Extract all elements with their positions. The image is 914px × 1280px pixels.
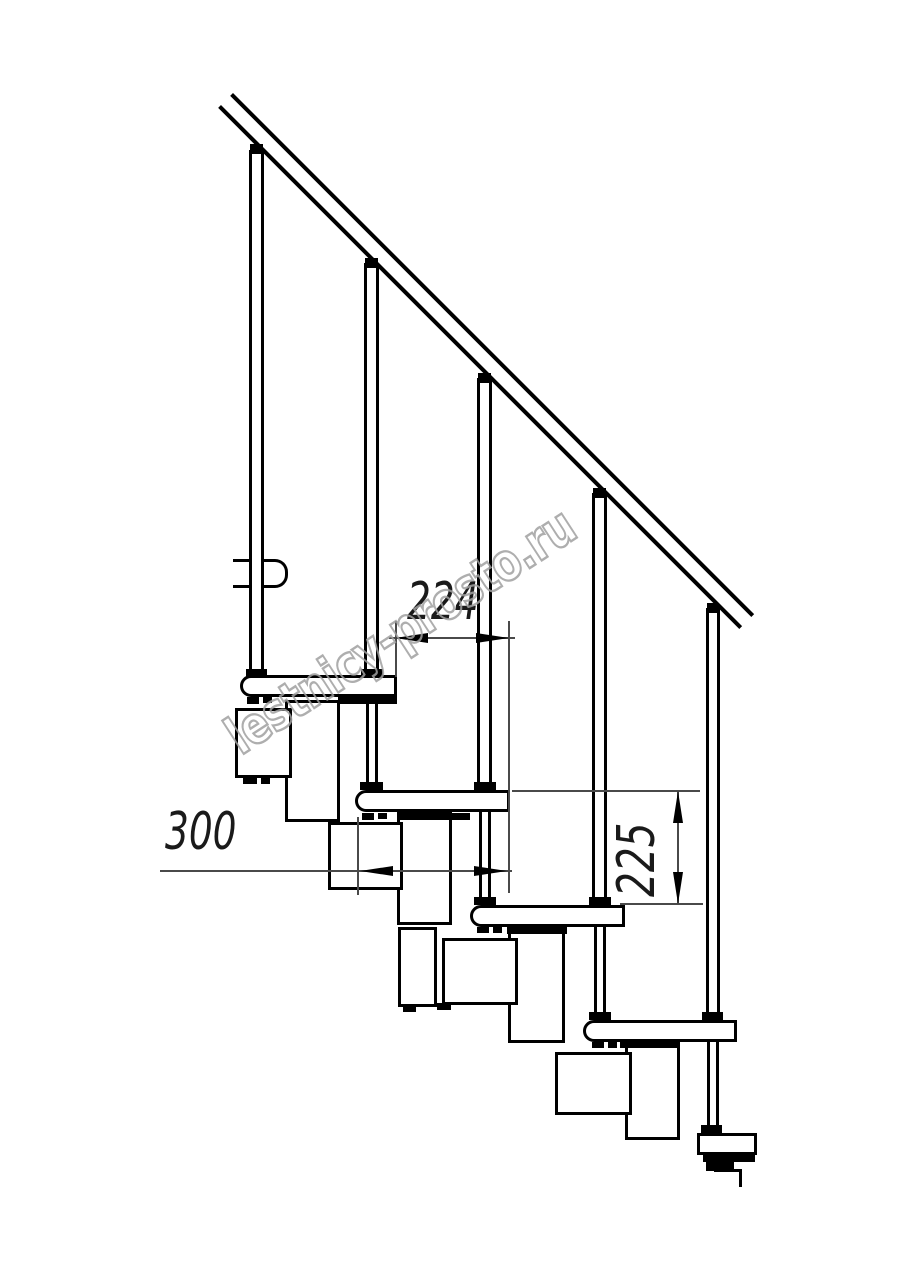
- tie-rod: [707, 1042, 719, 1133]
- tread-foot: [362, 813, 374, 820]
- baluster-4: [592, 493, 607, 905]
- tread-foot: [477, 927, 489, 933]
- baluster-1: [249, 150, 264, 677]
- under-tread-plate: [398, 813, 470, 820]
- module-foot: [243, 778, 257, 784]
- connector-module: [328, 822, 403, 890]
- under-tread-plate: [620, 1042, 680, 1048]
- tread-foot: [592, 1042, 604, 1048]
- bottom-bracket-line: [739, 1169, 742, 1187]
- tread-foot: [378, 813, 387, 819]
- staircase-drawing: 224 300 225 lestnicy-prosto.ru: [0, 0, 914, 1280]
- bottom-bracket-line: [714, 1169, 742, 1172]
- arrowhead-right-icon: [474, 866, 507, 876]
- baluster-cap: [365, 258, 378, 268]
- extension-line: [508, 621, 510, 893]
- under-tread-plate: [507, 927, 567, 934]
- support-module: [397, 812, 452, 925]
- arrowhead-down-icon: [673, 872, 683, 904]
- baluster-collar: [474, 897, 496, 905]
- baluster-collar: [474, 782, 496, 790]
- baluster-cap: [593, 488, 606, 498]
- tread-3: [470, 905, 625, 927]
- dimension-value-300: 300: [165, 806, 236, 858]
- baluster-collar: [589, 897, 611, 905]
- tread-foot: [608, 1042, 617, 1048]
- arrowhead-left-icon: [360, 866, 393, 876]
- arrowhead-up-icon: [673, 791, 683, 823]
- extension-line: [620, 903, 703, 905]
- baluster-collar: [246, 669, 267, 677]
- extension-line: [357, 817, 359, 895]
- dimension-line-300: [160, 870, 512, 872]
- watermark-text: lestnicy-prosto.ru: [213, 493, 589, 770]
- baluster-collar: [360, 782, 383, 790]
- support-module: [625, 1043, 680, 1140]
- module-foot: [403, 1006, 416, 1012]
- tread-foot: [493, 927, 502, 933]
- tie-rod: [594, 927, 606, 1020]
- baluster-collar: [701, 1125, 722, 1133]
- baluster-collar: [702, 1012, 723, 1020]
- tread-4: [583, 1020, 737, 1042]
- baluster-collar: [589, 1012, 611, 1020]
- support-module: [398, 927, 437, 1007]
- tie-rod: [479, 812, 491, 905]
- baluster-cap: [707, 603, 719, 613]
- arrowhead-right-icon: [476, 633, 509, 643]
- tie-rod: [366, 697, 378, 790]
- connector-module: [442, 938, 518, 1005]
- baluster-5: [706, 608, 720, 1020]
- dimension-value-225: 225: [611, 823, 663, 897]
- connector-module: [555, 1052, 632, 1115]
- extension-line: [512, 790, 700, 792]
- baluster-cap: [250, 144, 263, 154]
- tread-2: [355, 790, 510, 812]
- module-foot: [261, 778, 270, 784]
- under-tread-plate: [703, 1155, 755, 1162]
- baluster-cap: [478, 373, 491, 383]
- tread-5: [697, 1133, 757, 1155]
